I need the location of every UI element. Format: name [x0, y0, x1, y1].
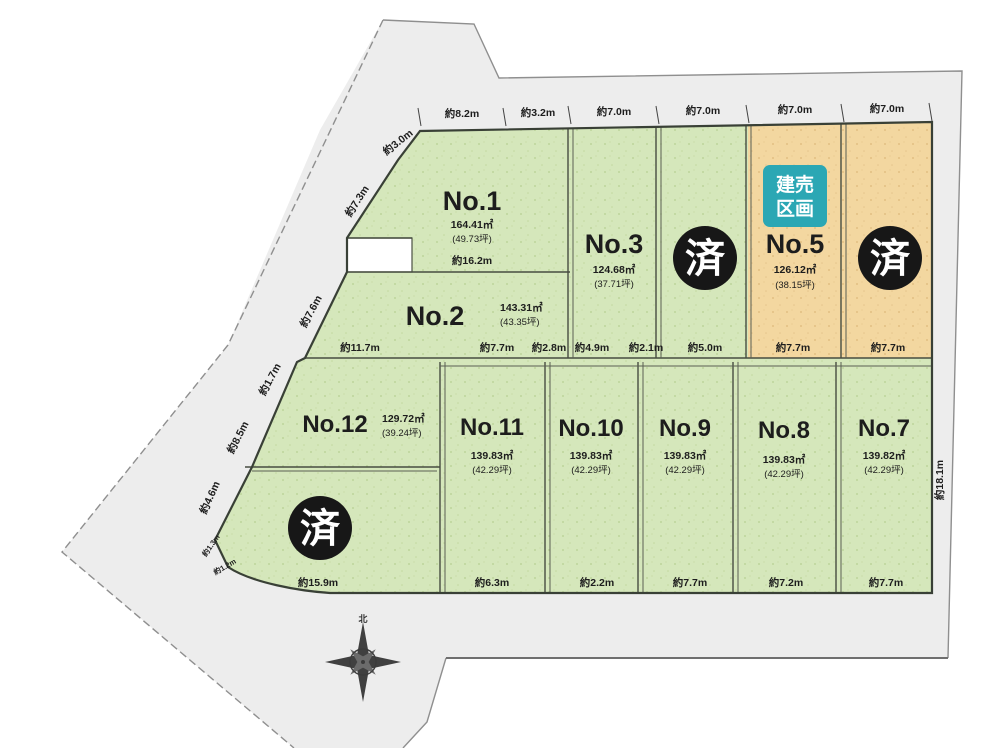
map-canvas: 済 済 済 建売 区画 北 約8.2m 約3.2m 約7.0m 約7.0m 約7… [0, 0, 1000, 748]
plot-label: No.5 [766, 229, 825, 259]
dim-label: 約11.7m [340, 341, 380, 354]
plot-area: 139.83㎡ [570, 449, 613, 462]
dim-label: 約3.2m [521, 106, 555, 119]
plot-no10-region [545, 362, 638, 593]
sold-label: 済 [870, 237, 911, 281]
plot-tsubo: (42.29坪) [571, 464, 611, 476]
dim-label: 約2.2m [580, 576, 614, 589]
plot-area: 126.12㎡ [774, 263, 817, 276]
plot-tsubo: (43.35坪) [500, 316, 540, 328]
plot-area: 124.68㎡ [593, 263, 636, 276]
plot-tsubo: (42.29坪) [864, 464, 904, 476]
dim-label: 約7.0m [686, 104, 720, 117]
built-for-sale-badge-line1: 建売 [776, 173, 814, 196]
plot-tsubo: (49.73坪) [452, 233, 492, 245]
plot-area: 143.31㎡ [500, 301, 543, 314]
plot-label: No.7 [858, 415, 910, 442]
plot-tsubo: (42.29坪) [764, 468, 804, 480]
plot-label: No.12 [302, 411, 367, 438]
plot-label: No.1 [443, 186, 502, 216]
plot-area: 139.83㎡ [664, 449, 707, 462]
dim-label: 約7.7m [869, 576, 903, 589]
dim-label: 約6.3m [475, 576, 509, 589]
plot-tsubo: (39.24坪) [382, 427, 422, 439]
dim-label: 約7.0m [870, 102, 904, 115]
plot-area: 139.82㎡ [863, 449, 906, 462]
plot-area: 164.41㎡ [451, 218, 494, 231]
plot-tsubo: (37.71坪) [594, 278, 634, 290]
dim-label: 約2.1m [629, 341, 663, 354]
lot-subdivision-map: 済 済 済 建売 区画 北 約8.2m 約3.2m 約7.0m 約7.0m 約7… [0, 0, 1000, 748]
built-for-sale-badge-line2: 区画 [776, 199, 814, 220]
dim-label: 約7.7m [776, 341, 810, 354]
plot-no9-region [638, 362, 733, 593]
plot-area: 139.83㎡ [763, 453, 806, 466]
plot-label: No.2 [406, 301, 465, 331]
plot-no11-region [440, 362, 545, 593]
dim-label: 約7.7m [673, 576, 707, 589]
sold-label: 済 [300, 507, 341, 551]
sold-label: 済 [685, 237, 726, 281]
dim-label: 約2.8m [532, 341, 566, 354]
plot-label: No.9 [659, 415, 711, 442]
dim-label: 約7.0m [778, 103, 812, 116]
plot-label: No.11 [460, 414, 524, 441]
dim-label: 約15.9m [298, 576, 338, 589]
dim-label: 約7.7m [480, 341, 514, 354]
dim-label: 約4.9m [575, 341, 609, 354]
plot-label: No.8 [758, 417, 810, 444]
plot-area: 129.72㎡ [382, 412, 425, 425]
plot-tsubo: (42.29坪) [665, 464, 705, 476]
plot-tsubo: (42.29坪) [472, 464, 512, 476]
dim-label: 約7.7m [871, 341, 905, 354]
plot-label: No.3 [585, 229, 644, 259]
dim-label: 約7.0m [597, 105, 631, 118]
dim-label: 約8.2m [445, 107, 479, 120]
dim-label: 約18.1m [933, 460, 946, 500]
plot-no7-region [836, 362, 932, 593]
plot-area: 139.83㎡ [471, 449, 514, 462]
dim-label: 約5.0m [688, 341, 722, 354]
plot-label: No.10 [558, 415, 623, 442]
dim-label: 約7.2m [769, 576, 803, 589]
dim-label: 約16.2m [452, 254, 492, 267]
plot-tsubo: (38.15坪) [775, 279, 815, 291]
